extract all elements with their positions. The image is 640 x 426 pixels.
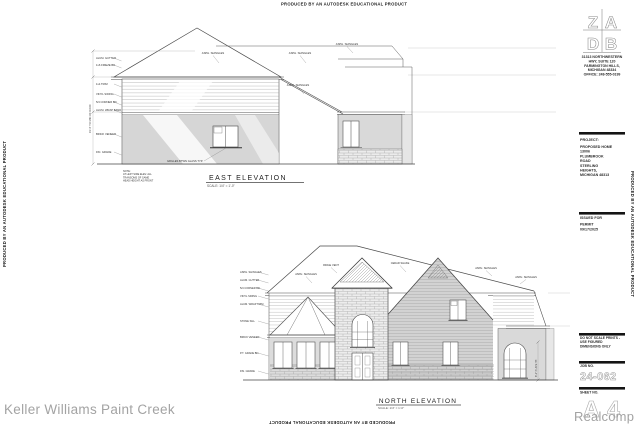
address-line: 31313 NORTHWESTERN bbox=[582, 55, 623, 59]
east-note: BRICK VENEER bbox=[96, 132, 116, 136]
project-label: PROJECT: bbox=[580, 138, 599, 142]
north-title: NORTH ELEVATION bbox=[379, 398, 457, 405]
title-block: Z A D B 31313 NORTHWESTERN HWY, SUITE 12… bbox=[576, 6, 640, 426]
project-line: PROPOSED HOME bbox=[580, 145, 613, 149]
north-note: 5/4 CORNER BD. bbox=[240, 286, 261, 290]
east-note: FIN. GRADE bbox=[96, 150, 112, 154]
east-note: ALUM. GUTTER bbox=[96, 56, 116, 60]
address-line: OFFICE: 248-555-0199 bbox=[584, 73, 621, 77]
arched-window bbox=[352, 315, 373, 348]
east-title-group: EAST ELEVATION SCALE: 1/4" = 1'-0" bbox=[206, 175, 304, 188]
window-tag bbox=[451, 301, 457, 306]
north-note: ALUM. GUTTER bbox=[240, 278, 259, 282]
logo-letter: Z bbox=[588, 13, 598, 32]
issue-info: ISSUED FOR PERMIT 09/17/2025 bbox=[580, 216, 602, 232]
roof-note: ASPH. SHINGLES bbox=[202, 51, 225, 55]
roof-note: RIDGE VENT bbox=[323, 263, 339, 267]
north-note: ASPH. SHINGLES bbox=[240, 270, 262, 274]
divider-bar bbox=[579, 212, 625, 215]
roof-note: ASPH. SHINGLES bbox=[289, 51, 312, 55]
autodesk-watermark-bottom: PRODUCED BY AN AUTODESK EDUCATIONAL PROD… bbox=[269, 420, 395, 425]
north-note: VINYL SIDING bbox=[240, 294, 257, 298]
east-elevation-drawing: 19'-4" TO MID OF ROOF ALUM. GUTTER 1x6 F… bbox=[85, 15, 425, 195]
drawing-sheet: PRODUCED BY AN AUTODESK EDUCATIONAL PROD… bbox=[0, 0, 640, 426]
north-note: STONE SILL bbox=[240, 319, 256, 323]
north-note: ALUM. WRAP TRIM bbox=[240, 302, 263, 306]
north-note: BRICK VENEER bbox=[240, 335, 259, 339]
east-bottom-note: HEAD HEIGHT AS FRONT bbox=[123, 180, 154, 183]
east-walls bbox=[97, 77, 415, 164]
window-note: GRILLES BTWN GLASS TYP. bbox=[167, 159, 203, 163]
east-title: EAST ELEVATION bbox=[209, 175, 287, 182]
autodesk-watermark-left: PRODUCED BY AN AUTODESK EDUCATIONAL PROD… bbox=[2, 141, 7, 267]
sheet-label: SHEET NO. bbox=[580, 391, 598, 395]
east-note: 1x4 TRIM bbox=[96, 82, 108, 86]
roof-note: CEDAR SHAKE bbox=[391, 261, 410, 265]
firm-logo: Z A D B bbox=[583, 9, 621, 54]
project-line: HEIGHTS, bbox=[580, 169, 597, 173]
project-line: PLUMBROOK bbox=[580, 154, 604, 158]
north-scale: SCALE: 1/4" = 1'-0" bbox=[378, 406, 404, 410]
north-elevation-drawing: 8'-1" PLATE HT. ASPH. SHINGLES ALUM. GUT… bbox=[228, 226, 573, 410]
keller-williams-watermark: Keller Williams Paint Creek bbox=[4, 402, 175, 417]
north-note: FIN. GRADE bbox=[240, 369, 255, 373]
north-dim-note: 8'-1" PLATE HT. bbox=[535, 359, 538, 377]
divider-bar bbox=[579, 132, 625, 135]
firm-address: 31313 NORTHWESTERN HWY, SUITE 120 FARMIN… bbox=[582, 55, 623, 77]
issued-line: PERMIT bbox=[580, 223, 594, 227]
autodesk-watermark-top: PRODUCED BY AN AUTODESK EDUCATIONAL PROD… bbox=[281, 2, 407, 7]
project-line: 13006 bbox=[580, 150, 590, 154]
issued-label: ISSUED FOR bbox=[580, 216, 602, 220]
realcomp-watermark: Realcomp bbox=[574, 409, 634, 424]
roof-note: ASPH. SHINGLES bbox=[295, 272, 317, 276]
project-line: ROAD bbox=[580, 159, 591, 163]
address-line: MICHIGAN 48334 bbox=[588, 68, 616, 72]
north-title-group: NORTH ELEVATION SCALE: 1/4" = 1'-0" bbox=[376, 398, 461, 410]
address-line: HWY, SUITE 120 bbox=[589, 59, 616, 63]
roof-note: ASPH. SHINGLES bbox=[475, 266, 497, 270]
disclaimer: DO NOT SCALE PRINTS - USE FIGURED DIMENS… bbox=[580, 336, 620, 348]
address-line: FARMINGTON HILLS, bbox=[584, 64, 620, 68]
window-tag bbox=[214, 127, 222, 133]
east-note: 1x6 FRIEZE BD. bbox=[96, 63, 116, 67]
logo-letter: A bbox=[605, 13, 617, 32]
issued-line: 09/17/2025 bbox=[580, 228, 598, 232]
job-number: 24-062 bbox=[580, 371, 617, 383]
east-note: VINYL SIDING bbox=[96, 92, 114, 96]
roof-note: ASPH. SHINGLES bbox=[287, 83, 310, 87]
roof-note: ASPH. SHINGLES bbox=[336, 42, 359, 46]
project-info: PROJECT: PROPOSED HOME 13006 PLUMBROOK R… bbox=[580, 138, 613, 177]
disclaimer-line: DIMENSIONS ONLY bbox=[580, 344, 611, 348]
logo-letter: B bbox=[605, 35, 617, 54]
project-line: MICHIGAN 48313 bbox=[580, 173, 609, 177]
job-number-block: JOB NO. 24-062 bbox=[580, 364, 617, 383]
wing-arched-window bbox=[502, 343, 528, 378]
job-label: JOB NO. bbox=[580, 364, 594, 368]
project-line: STERLING bbox=[580, 164, 598, 168]
divider-bar bbox=[579, 387, 625, 390]
roof-note: ASPH. SHINGLES bbox=[515, 275, 537, 279]
north-roof bbox=[265, 246, 536, 296]
north-note: P.T. GRADE BD. bbox=[240, 351, 259, 355]
logo-letter: D bbox=[587, 35, 599, 54]
east-scale: SCALE: 1/4" = 1'-0" bbox=[207, 184, 235, 188]
east-dim-note: 19'-4" TO MID OF ROOF bbox=[88, 104, 92, 133]
